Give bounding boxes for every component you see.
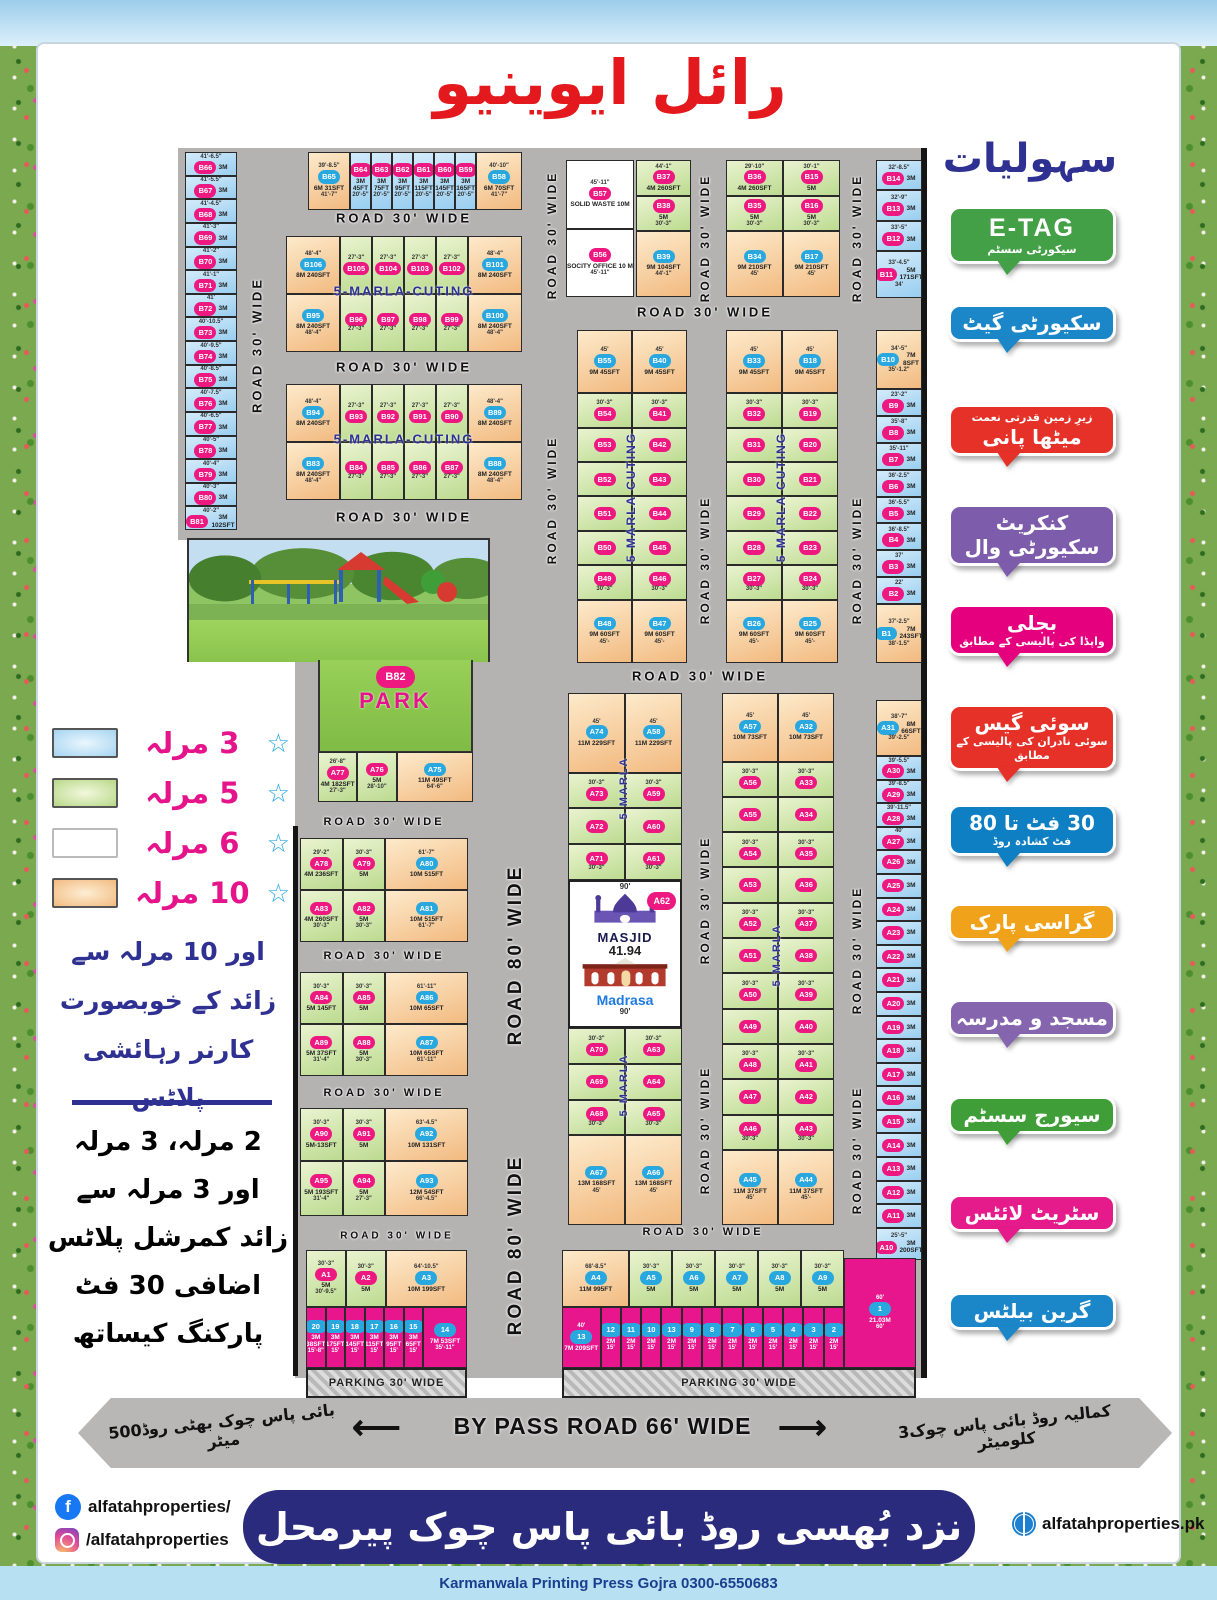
divider <box>72 1100 272 1105</box>
plot-B80: 40'-3"B803M <box>185 483 237 507</box>
plot-size-label: 9M 45SFT <box>795 369 825 376</box>
dimension-label: 20'-5" <box>436 192 452 199</box>
facebook-link[interactable]: f alfatahproperties/ <box>55 1494 231 1520</box>
plot-size-label: 3M 95FT <box>384 1334 404 1348</box>
plot-number-badge: 17 <box>365 1320 385 1334</box>
plot-number-badge: A34 <box>795 808 817 822</box>
plot-block: 32'-8.5"B143M32'-9"B133M33'-5"B123M33'-4… <box>876 160 922 298</box>
playground-equipment-graphic <box>189 540 488 620</box>
plot-A48: 30'-3"A48 <box>722 1044 778 1079</box>
dimension-label: 41'-4.5" <box>200 201 221 208</box>
plot-A41: 30'-3"A41 <box>778 1044 834 1079</box>
plot-number-badge: B2 <box>882 587 904 601</box>
plot-B11: 33'-4.5"B115M 171SFT34' <box>876 251 922 298</box>
plot-A46: A4630'-3" <box>722 1115 778 1150</box>
plot-number-badge: A83 <box>310 902 332 916</box>
plot-size-label: 3M 115FT <box>365 1334 385 1348</box>
plot-number-badge: B27 <box>743 572 765 586</box>
road-label: ROAD 30' WIDE <box>698 1066 712 1195</box>
instagram-handle: /alfatahproperties <box>86 1530 229 1550</box>
dimension-label: 27'-3" <box>329 788 345 795</box>
plot-B37: 44'-1"B374M 260SFT <box>636 160 691 196</box>
road-label: ROAD 30' WIDE <box>336 360 472 375</box>
dimension-label: 64'-10.5" <box>414 1264 439 1271</box>
plot-size-label: SOCITY OFFICE 10 M <box>567 263 633 270</box>
plot-number-badge: B88 <box>484 457 506 471</box>
dimension-label: 30'-3" <box>798 1136 814 1143</box>
plot-B20: B20 <box>782 428 838 462</box>
plot-A17: A173M <box>876 1063 922 1087</box>
plot-A80: 61'-7"A8010M 515FT <box>385 838 468 890</box>
dimension-label: 40'-5" <box>203 437 219 444</box>
plot-size-label: 4M 260SFT <box>647 185 681 192</box>
road-label: ROAD 30' WIDE <box>698 174 712 303</box>
facility-badge-label: سٹریٹ لائٹس <box>955 1201 1109 1225</box>
plot-number-badge: 9 <box>682 1323 702 1337</box>
dimension-label: 45'- <box>599 639 609 646</box>
plot-B69: 41'-3"B693M <box>185 223 237 247</box>
plot-block: 30'-3"A70A69A6830'-3"A6713M 168SFT45' <box>568 1028 625 1225</box>
plot-size-label: 5M <box>732 1286 741 1293</box>
plot-number-badge: B72 <box>194 302 216 316</box>
plot-A74: 45'A7411M 229SFT <box>568 693 625 773</box>
plot-size-label: 10M 131SFT <box>408 1142 446 1149</box>
instagram-icon <box>55 1528 79 1552</box>
road-label: ROAD 30' WIDE <box>632 669 768 684</box>
plot-size-label: 5M 37SFT <box>306 1050 336 1057</box>
badge-tail <box>997 767 1021 782</box>
plot-number-badge: A5 <box>640 1271 662 1285</box>
plot-size-label: 10M 73SFT <box>789 734 823 741</box>
plot-block: A955M 193SFT31'-4"A945M27'-3"A9312M 54SF… <box>300 1161 468 1216</box>
dimension-label: 34' <box>895 282 903 289</box>
plot-20: 203M 38SFT15'-8" <box>306 1307 326 1368</box>
facility-badge-subtext: فٹ کشادہ روڈ <box>955 835 1109 849</box>
plot-number-badge: B40 <box>649 354 671 368</box>
plot-size-label: 2M <box>728 1338 737 1345</box>
dimension-label: 61'-7" <box>418 923 434 930</box>
plot-size-label: 7M 53SFT <box>430 1338 460 1345</box>
plot-number-badge: B48 <box>594 617 616 631</box>
plot-size-label: 8M 240SFT <box>478 272 512 279</box>
badge-tail <box>997 1033 1021 1048</box>
plot-block: B958M 240SFT48'-4"B9627'-3"B9727'-3"B982… <box>286 294 522 352</box>
website-link[interactable]: alfatahproperties.pk <box>1012 1512 1205 1536</box>
park-area: B82 PARK <box>318 660 473 753</box>
badge-tail <box>997 562 1021 577</box>
plot-B57: 45'-11"B57SOLID WASTE 10M <box>566 160 634 229</box>
dimension-label: 41' <box>207 295 215 302</box>
dimension-label: 27'-3" <box>348 403 364 410</box>
plot-B42: B42 <box>632 428 687 462</box>
dimension-label: 40'-2" <box>203 508 219 515</box>
legend-note-commercial-plots: 2 مرلہ، 3 مرلہ اور 3 مرلہ سے زائد کمرشل … <box>44 1118 292 1358</box>
plot-size-label: 3M <box>218 187 227 194</box>
plot-number-badge: A50 <box>739 988 761 1002</box>
road-label: ROAD 30' WIDE <box>850 886 864 1015</box>
plot-B76: 40'-7.5"B763M <box>185 388 237 412</box>
dimension-label: 44'-1" <box>655 271 671 278</box>
plot-size-label: 4M 236SFT <box>304 871 338 878</box>
dimension-label: 45' <box>746 1195 754 1202</box>
plot-number-badge: B101 <box>482 258 508 272</box>
plot-size-label: 2M <box>708 1338 717 1345</box>
plot-B40: 45'B409M 45SFT <box>632 330 687 393</box>
plot-size-label: 3M <box>906 1071 915 1078</box>
plot-A40: A40 <box>778 1009 834 1044</box>
plot-A50: 30'-3"A50 <box>722 973 778 1008</box>
plot-number-badge: A45 <box>739 1173 761 1187</box>
dimension-label: 30'-3" <box>742 769 758 776</box>
plot-size-label: 3M <box>218 164 227 171</box>
plot-number-badge: A95 <box>310 1174 332 1188</box>
plot-7: 72M15' <box>722 1307 742 1368</box>
dimension-label: 15' <box>351 1348 359 1355</box>
plot-number-badge: B100 <box>482 309 508 323</box>
plot-number-badge: A93 <box>416 1174 438 1188</box>
plot-size-label: 3M <box>906 205 915 212</box>
plot-number-badge: B35 <box>744 199 766 213</box>
plot-B32: 30'-3"B32 <box>726 393 782 427</box>
plot-number-badge: B76 <box>194 397 216 411</box>
road-label: ROAD 30' WIDE <box>250 277 265 413</box>
plot-number-badge: B61 <box>413 163 434 177</box>
plot-A24: A243M <box>876 898 922 922</box>
plot-number-badge: A8 <box>769 1271 791 1285</box>
plot-size-label: 2M <box>626 1338 635 1345</box>
plot-number-badge: A20 <box>882 997 904 1011</box>
plot-number-badge: 20 <box>306 1320 326 1334</box>
location-banner-text: نزد بُھسی روڈ بائی پاس چوک پیرمحل <box>256 1505 962 1549</box>
plot-size-label: 5M <box>775 1286 784 1293</box>
plot-number-badge: B42 <box>649 438 671 452</box>
plot-B94: 48'-4"B948M 240SFT <box>286 384 340 442</box>
road-label: ROAD 30' WIDE <box>698 496 712 625</box>
plot-number-badge: A89 <box>310 1036 332 1050</box>
plot-number-badge: 19 <box>326 1320 346 1334</box>
dimension-label: 27'-3" <box>380 326 396 333</box>
dimension-label: 40'-6.5" <box>200 413 221 420</box>
road-label: ROAD 30' WIDE <box>323 816 444 828</box>
plot-size-label: 8M 240SFT <box>296 272 330 279</box>
plot-number-badge: A49 <box>739 1020 761 1034</box>
road-label: ROAD 30' WIDE <box>545 171 559 300</box>
dimension-label: 45' <box>802 713 810 720</box>
plot-number-badge: B58 <box>488 170 510 184</box>
road-label: ROAD 30' WIDE <box>642 1226 763 1238</box>
plot-block: 26'-8"A774M 182SFT27'-3"A765M28'-10"A751… <box>318 752 473 802</box>
left-arrow-icon: ⟵ <box>352 1408 401 1448</box>
plot-B106: 48'-4"B1068M 240SFT <box>286 236 340 294</box>
plot-A57: 45'A5710M 73SFT <box>722 693 778 762</box>
dimension-label: 20'-5" <box>458 192 474 199</box>
plot-size-label: 9M 60SFT <box>589 631 619 638</box>
plot-number-badge: A51 <box>739 949 761 963</box>
plot-size-label: 2M <box>667 1338 676 1345</box>
plot-size-label: 6M 31SFT <box>314 185 344 192</box>
facility-badge: سکیورٹی گیٹ <box>948 304 1116 342</box>
plot-number-badge: 13 <box>570 1330 592 1344</box>
plot-number-badge: B33 <box>743 354 765 368</box>
plot-size-label: 7M 209SFT <box>564 1345 598 1352</box>
plot-B56: B56SOCITY OFFICE 10 M45'-11" <box>566 229 634 298</box>
plot-A30: 39'-5.5"A303M <box>876 756 922 780</box>
dimension-label: 15' <box>769 1345 777 1352</box>
plot-number-badge: A6 <box>683 1271 705 1285</box>
legend-row-3marla: 3 مرلہ ☆ <box>52 726 290 760</box>
plot-size-label: 3M <box>906 1000 915 1007</box>
plot-number-badge: 3 <box>803 1323 823 1337</box>
dimension-label: 45'-11" <box>590 180 609 187</box>
road-label: ROAD 80' WIDE <box>505 865 527 1046</box>
plot-number-badge: A28 <box>882 812 904 826</box>
plot-number-badge: A2 <box>355 1271 377 1285</box>
plot-size-label: 3M <box>906 882 915 889</box>
plot-A16: A163M <box>876 1086 922 1110</box>
sky-border-top <box>0 0 1217 46</box>
facilities-heading: سہولیات <box>935 136 1125 182</box>
dimension-label: 20'-5" <box>415 192 431 199</box>
plot-size-label: 5M <box>818 1286 827 1293</box>
plot-number-badge: B57 <box>589 187 611 201</box>
dimension-label: 28'-10" <box>367 784 387 791</box>
dimension-label: 27'-3" <box>412 326 428 333</box>
plot-A20: A203M <box>876 992 922 1016</box>
dimension-label: 45'-11" <box>590 270 609 277</box>
plot-B38: B385M30'-3" <box>636 196 691 232</box>
plot-size-label: 11M 49SFT <box>418 777 452 784</box>
plot-number-badge: B13 <box>882 202 904 216</box>
plot-size-label: 3M <box>906 563 915 570</box>
plot-A4: 68'-8.5"A411M 995FT <box>562 1250 629 1307</box>
plot-number-badge: B51 <box>594 507 616 521</box>
plot-number-badge: A26 <box>882 855 904 869</box>
plot-number-badge: B95 <box>302 309 324 323</box>
plot-number-badge: B99 <box>441 313 463 327</box>
plot-B54: 30'-3"B54 <box>577 393 632 427</box>
dimension-label: 45' <box>592 1188 600 1195</box>
dimension-label: 30'-3" <box>686 1264 702 1271</box>
plot-B4: 36'-8.5"B43M <box>876 523 922 550</box>
plot-A82: A825M30'-3" <box>343 890 386 942</box>
facility-badge-label: بجلی <box>955 611 1109 635</box>
plot-B34: B349M 210SFT45' <box>726 231 783 297</box>
plot-B33: 45'B339M 45SFT <box>726 330 782 393</box>
plot-A29: 39'-8.5"A293M <box>876 780 922 804</box>
plot-number-badge: B5 <box>882 507 904 521</box>
plot-size-label: 9M 45SFT <box>589 369 619 376</box>
dimension-label: 30'-3" <box>645 780 661 787</box>
road-label: ROAD 30' WIDE <box>323 950 444 962</box>
plot-number-badge: 4 <box>783 1323 803 1337</box>
road-label: ROAD 30' WIDE <box>340 1231 454 1242</box>
boundary-wall <box>293 826 298 1376</box>
plot-B21: B21 <box>782 462 838 496</box>
plot-number-badge: B104 <box>375 262 401 276</box>
plot-size-label: 3M 102SFT <box>210 514 236 528</box>
plot-number-badge: B18 <box>799 354 821 368</box>
facility-badge: بجلیواپڈا کی پالیسی کے مطابق <box>948 604 1116 656</box>
plot-B72: 41'B723M <box>185 294 237 318</box>
plot-B5: 36'-5.5"B53M <box>876 497 922 524</box>
plot-number-badge: B68 <box>194 208 216 222</box>
plot-B68: 41'-4.5"B683M <box>185 199 237 223</box>
star-icon: ☆ <box>267 828 290 859</box>
dimension-label: 35'-11" <box>889 446 908 453</box>
plot-number-badge: A47 <box>739 1090 761 1104</box>
plot-number-badge: A41 <box>795 1058 817 1072</box>
plot-14: 147M 53SFT35'-11" <box>423 1307 467 1368</box>
plot-size-label: 10M 65SFT <box>410 1005 444 1012</box>
plot-number-badge: A24 <box>882 903 904 917</box>
dimension-label: 27'-3" <box>412 255 428 262</box>
plot-size-label: 3M 45FT <box>350 178 371 192</box>
dimension-label: 30'-3" <box>645 865 661 872</box>
facility-badge: سیورج سسٹم <box>948 1096 1116 1134</box>
plot-number-badge: B84 <box>345 461 367 475</box>
instagram-link[interactable]: /alfatahproperties <box>55 1528 229 1552</box>
plot-number-badge: A22 <box>882 950 904 964</box>
dimension-label: 39'-2.5" <box>888 735 909 742</box>
plot-A42: A42 <box>778 1079 834 1114</box>
plot-number-badge: A92 <box>415 1127 437 1141</box>
plot-B26: B269M 60SFT45'- <box>726 600 782 663</box>
plot-number-badge: B31 <box>743 438 765 452</box>
plot-number-badge: A1 <box>315 1268 337 1282</box>
plot-size-label: 10M 515FT <box>410 871 443 878</box>
plot-A71: A7130'-3" <box>568 844 625 880</box>
plot-number-badge: A48 <box>739 1058 761 1072</box>
road-label: ROAD 30' WIDE <box>323 1087 444 1099</box>
plot-number-badge: B24 <box>799 572 821 586</box>
dimension-label: 40'-10" <box>489 163 509 170</box>
dimension-label: 30'-3" <box>645 1121 661 1128</box>
plot-size-label: 11M 229SFT <box>578 740 615 747</box>
plot-number-badge: A40 <box>795 1020 817 1034</box>
dimension-label: 40'-7.5" <box>200 390 221 397</box>
plot-size-label: 5M <box>321 1282 330 1289</box>
plot-18: 183M 145FT15' <box>345 1307 365 1368</box>
plot-size-label: 3M <box>218 305 227 312</box>
plot-size-label: 7M 8SFT <box>901 352 921 366</box>
dimension-label: 45' <box>592 719 600 726</box>
dimension-label: 27'-3" <box>444 403 460 410</box>
plot-A3: 64'-10.5"A310M 199SFT <box>386 1250 467 1307</box>
plot-B84: B8427'-3" <box>340 442 372 500</box>
plot-size-label: 5M <box>372 777 381 784</box>
dimension-label: 45' <box>600 347 608 354</box>
plot-B62: B623M 95FT20'-5" <box>392 152 413 210</box>
facility-badge: 30 فٹ تا 80فٹ کشادہ روڈ <box>948 804 1116 856</box>
masjid-label: MASJID <box>570 931 680 944</box>
plot-size-label: 8M 240SFT <box>478 323 512 330</box>
legend-swatch-6marla <box>52 828 118 858</box>
plot-number-badge: A29 <box>882 788 904 802</box>
dimension-label: 20'-5" <box>394 192 410 199</box>
dimension-label: 30'-3" <box>798 840 814 847</box>
dimension-label: 45'- <box>749 639 759 646</box>
plot-number-badge: A79 <box>353 857 375 871</box>
plot-number-badge: B60 <box>434 163 455 177</box>
plot-number-badge: 15 <box>404 1320 424 1334</box>
plot-13: 132M15' <box>661 1307 681 1368</box>
plot-number-badge: B46 <box>649 572 671 586</box>
plot-size-label: 5M <box>646 1286 655 1293</box>
plot-number-badge: B38 <box>653 199 675 213</box>
plot-number-badge: B28 <box>743 541 765 555</box>
plot-size-label: 3M <box>218 282 227 289</box>
plot-number-badge: A63 <box>643 1043 665 1057</box>
dimension-label: 30'-3" <box>358 1264 374 1271</box>
facility-badge-label: سکیورٹی گیٹ <box>955 311 1109 335</box>
dimension-label: 26'-8" <box>329 759 345 766</box>
dimension-label: 30'-3" <box>596 400 612 407</box>
plot-size-label: 3M <box>906 906 915 913</box>
dimension-label: 30'-3" <box>588 1121 604 1128</box>
plot-number-badge: B93 <box>345 410 367 424</box>
plot-B60: B603M 145FT20'-5" <box>434 152 455 210</box>
plot-B96: B9627'-3" <box>340 294 372 352</box>
plot-A25: A253M <box>876 874 922 898</box>
plot-size-label: 5M <box>359 1142 368 1149</box>
plot-number-badge: B47 <box>649 617 671 631</box>
right-arrow-icon: ⟶ <box>778 1408 827 1448</box>
plot-number-badge: 11 <box>621 1323 641 1337</box>
plot-A61: A6130'-3" <box>625 844 682 880</box>
plot-B23: B23 <box>782 531 838 565</box>
plot-B99: B9927'-3" <box>436 294 468 352</box>
plot-size-label: 2M <box>809 1338 818 1345</box>
plot-number-badge: A59 <box>643 787 665 801</box>
plot-B83: B838M 240SFT48'-4" <box>286 442 340 500</box>
plot-number-badge: A68 <box>586 1107 608 1121</box>
road-label: ROAD 30' WIDE <box>637 305 773 320</box>
plot-block: A895M 37SFT31'-4"A885M30'-3"A8710M 65SFT… <box>300 1024 468 1076</box>
dimension-label: 15' <box>331 1348 339 1355</box>
plot-B15: 30'-1"B155M <box>783 160 840 196</box>
plot-B19: 30'-3"B19 <box>782 393 838 427</box>
legend-label: 3 مرلہ <box>118 726 267 760</box>
plot-B98: B9827'-3" <box>404 294 436 352</box>
plot-number-badge: B79 <box>194 468 216 482</box>
plot-number-badge: A35 <box>795 847 817 861</box>
plot-block: A834M 260SFT30'-3"A825M30'-3"A8110M 515F… <box>300 890 468 942</box>
dimension-label: 30'-3" <box>729 1264 745 1271</box>
plot-number-badge: A56 <box>739 776 761 790</box>
dimension-label: 37'-2.5" <box>888 619 909 626</box>
plot-number-badge: B55 <box>594 354 616 368</box>
plot-B14: 32'-8.5"B143M <box>876 160 922 190</box>
star-icon: ☆ <box>267 728 290 759</box>
plot-A86: 61'-11"A8610M 65SFT <box>385 972 468 1024</box>
dimension-label: 30'-3" <box>313 923 329 930</box>
plot-B55: 45'B559M 45SFT <box>577 330 632 393</box>
plot-A54: 30'-3"A54 <box>722 832 778 867</box>
plot-12: 122M15' <box>601 1307 621 1368</box>
plot-number-badge: B89 <box>484 406 506 420</box>
plot-size-label: 5M <box>359 1005 368 1012</box>
badge-tail <box>997 652 1021 667</box>
plot-size-label: 3M <box>906 483 915 490</box>
plot-number-badge: A38 <box>795 949 817 963</box>
dimension-label: 30'-3" <box>802 400 818 407</box>
plot-B49: B4930'-3" <box>577 565 632 599</box>
plot-B89: 48'-4"B898M 240SFT <box>468 384 522 442</box>
dimension-label: 64'-6" <box>427 784 443 791</box>
plot-number-badge: A62 <box>647 892 676 910</box>
legend-swatch-10marla <box>52 878 118 908</box>
plot-number-badge: B103 <box>407 262 433 276</box>
